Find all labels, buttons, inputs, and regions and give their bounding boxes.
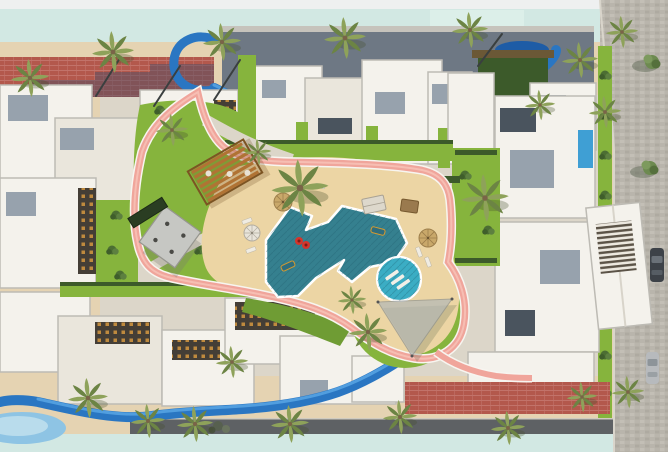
parked-car-dark (650, 248, 664, 282)
umbrella (244, 225, 260, 241)
roof-deck (95, 322, 150, 344)
louver-roof (596, 220, 637, 273)
parked-car-silver (646, 352, 659, 384)
balcony-strip (78, 188, 96, 274)
masterplan-rendering (0, 0, 668, 452)
kids-pool (377, 257, 421, 301)
tiki-hut (419, 229, 437, 247)
roof-deck (172, 340, 220, 360)
lagoon-bottom (0, 434, 668, 452)
private-pool (578, 130, 593, 168)
page-top-strip (0, 0, 668, 9)
masterplan-canvas (0, 0, 668, 452)
cabana-brown (400, 199, 419, 213)
